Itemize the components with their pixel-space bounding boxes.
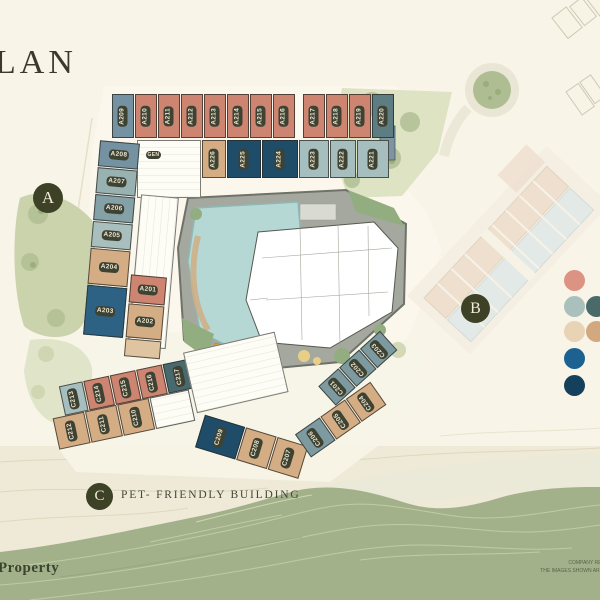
unit-label: A222 <box>338 149 348 170</box>
disclaimer-text: COMPANY RESERVES THE THE IMAGES SHOWN AR… <box>498 559 600 575</box>
unit-label: A207 <box>106 176 128 188</box>
corridor-gap <box>296 94 302 138</box>
unit-label: A218 <box>332 106 342 127</box>
building-a-inner-column: A201 A202 <box>124 274 167 359</box>
unit-label: C211 <box>97 413 111 435</box>
unit-a209: A209 <box>112 94 134 138</box>
building-b-marker: B <box>461 294 490 323</box>
utility-block: GEN <box>137 140 201 198</box>
unit-label: C208 <box>249 437 264 460</box>
unit-a220: A220 <box>372 94 394 138</box>
unit-a218: A218 <box>326 94 348 138</box>
unit-a207: A207 <box>95 167 137 196</box>
unit-label: A216 <box>279 106 289 127</box>
unit-label: A205 <box>101 230 123 242</box>
unit-a212: A212 <box>181 94 203 138</box>
page-title: LAN <box>0 44 77 82</box>
unit-a205: A205 <box>91 221 133 250</box>
unit-label: A208 <box>108 149 130 161</box>
building-b-letter: B <box>470 300 481 318</box>
unit-a219: A219 <box>349 94 371 138</box>
unit-a221: A221 <box>357 140 389 178</box>
unit-label: C204 <box>356 391 376 413</box>
legend-dot-light-blue <box>564 296 585 317</box>
unit-label: C203 <box>368 339 389 361</box>
disclaimer-line-1: COMPANY RESERVES THE <box>498 559 600 567</box>
unit-c212: C212 <box>53 412 91 450</box>
building-c-marker: C <box>86 483 113 510</box>
building-a-top-row: A209 A210 A211 A212 A213 A214 A215 A216 … <box>112 94 394 138</box>
unit-a224: A224 <box>262 140 298 178</box>
unit-label: C216 <box>145 371 159 393</box>
unit-a206: A206 <box>93 194 135 223</box>
unit-a202: A202 <box>126 303 165 340</box>
unit-c211: C211 <box>85 405 123 443</box>
legend-dot-dark-teal <box>586 296 600 317</box>
unit-label: A215 <box>256 106 266 127</box>
unit-a226: A226 <box>202 140 226 178</box>
unit-label: C202 <box>347 357 368 379</box>
unit-label: C201 <box>327 376 348 398</box>
unit-a222: A222 <box>330 140 356 178</box>
unit-label: A214 <box>233 106 243 127</box>
unit-a211: A211 <box>158 94 180 138</box>
unit-label: A201 <box>137 284 159 296</box>
unit-a225: A225 <box>227 140 261 178</box>
unit-a223: A223 <box>299 140 329 178</box>
play-area <box>298 350 310 362</box>
unit-a210: A210 <box>135 94 157 138</box>
unit-label: A224 <box>275 149 285 170</box>
unit-label: A220 <box>378 106 388 127</box>
unit-label: C217 <box>173 365 187 387</box>
pool-steps <box>300 204 336 220</box>
legend-dot-salmon <box>564 270 585 291</box>
unit-label: C207 <box>280 447 295 470</box>
unit-a216: A216 <box>273 94 295 138</box>
unit-label: C215 <box>119 376 133 398</box>
unit-label: A221 <box>368 149 378 170</box>
legend-dot-blue <box>564 348 585 369</box>
unit-label: A203 <box>94 305 116 317</box>
unit-label: A217 <box>309 106 319 127</box>
unit-label: C213 <box>67 387 81 409</box>
unit-a203: A203 <box>83 285 127 338</box>
unit-label: C212 <box>65 420 79 442</box>
unit-label: A210 <box>141 106 151 127</box>
unit-a204: A204 <box>88 248 131 287</box>
unit-label: A211 <box>164 106 174 126</box>
unit-label: A212 <box>187 106 197 127</box>
unit-unlabeled <box>124 338 161 359</box>
unit-label: A223 <box>309 149 319 170</box>
pet-friendly-note: PET- FRIENDLY BUILDING <box>121 489 300 501</box>
unit-label: C210 <box>129 406 143 428</box>
unit-label: C206 <box>305 426 325 448</box>
unit-label: A219 <box>355 106 365 127</box>
legend-dot-navy <box>564 375 585 396</box>
building-a-marker: A <box>33 183 63 213</box>
building-a-second-row: A226 A225 A224 A223 A222 A221 <box>202 140 389 178</box>
roundabout <box>444 63 519 156</box>
unit-label: A204 <box>98 261 120 273</box>
unit-label: A209 <box>118 106 128 127</box>
unit-a217: A217 <box>303 94 325 138</box>
building-c-letter: C <box>94 488 104 505</box>
unit-label: A213 <box>210 106 220 127</box>
unit-label: C205 <box>331 408 351 430</box>
building-a-letter: A <box>42 188 54 208</box>
gen-room-label: GEN <box>146 151 161 159</box>
unit-a215: A215 <box>250 94 272 138</box>
unit-label: A226 <box>209 149 219 170</box>
unit-label: A202 <box>134 316 156 328</box>
disclaimer-line-2: THE IMAGES SHOWN ARE COMPUTER <box>498 567 600 575</box>
unit-label: A206 <box>103 203 125 215</box>
brand-logo-text: Property <box>0 560 59 577</box>
unit-a213: A213 <box>204 94 226 138</box>
unit-label: C209 <box>213 426 228 449</box>
site-plan-page: A209 A210 A211 A212 A213 A214 A215 A216 … <box>0 0 600 600</box>
play-area-2 <box>313 357 321 365</box>
unit-a214: A214 <box>227 94 249 138</box>
unit-label: A225 <box>239 149 249 170</box>
unit-a201: A201 <box>129 274 167 305</box>
legend-dot-tan <box>586 321 600 342</box>
far-east-buildings <box>552 0 600 115</box>
unit-label: C214 <box>92 382 106 404</box>
unit-a208: A208 <box>98 140 140 169</box>
unit-c210: C210 <box>117 398 155 436</box>
legend-dot-light-tan <box>564 321 585 342</box>
